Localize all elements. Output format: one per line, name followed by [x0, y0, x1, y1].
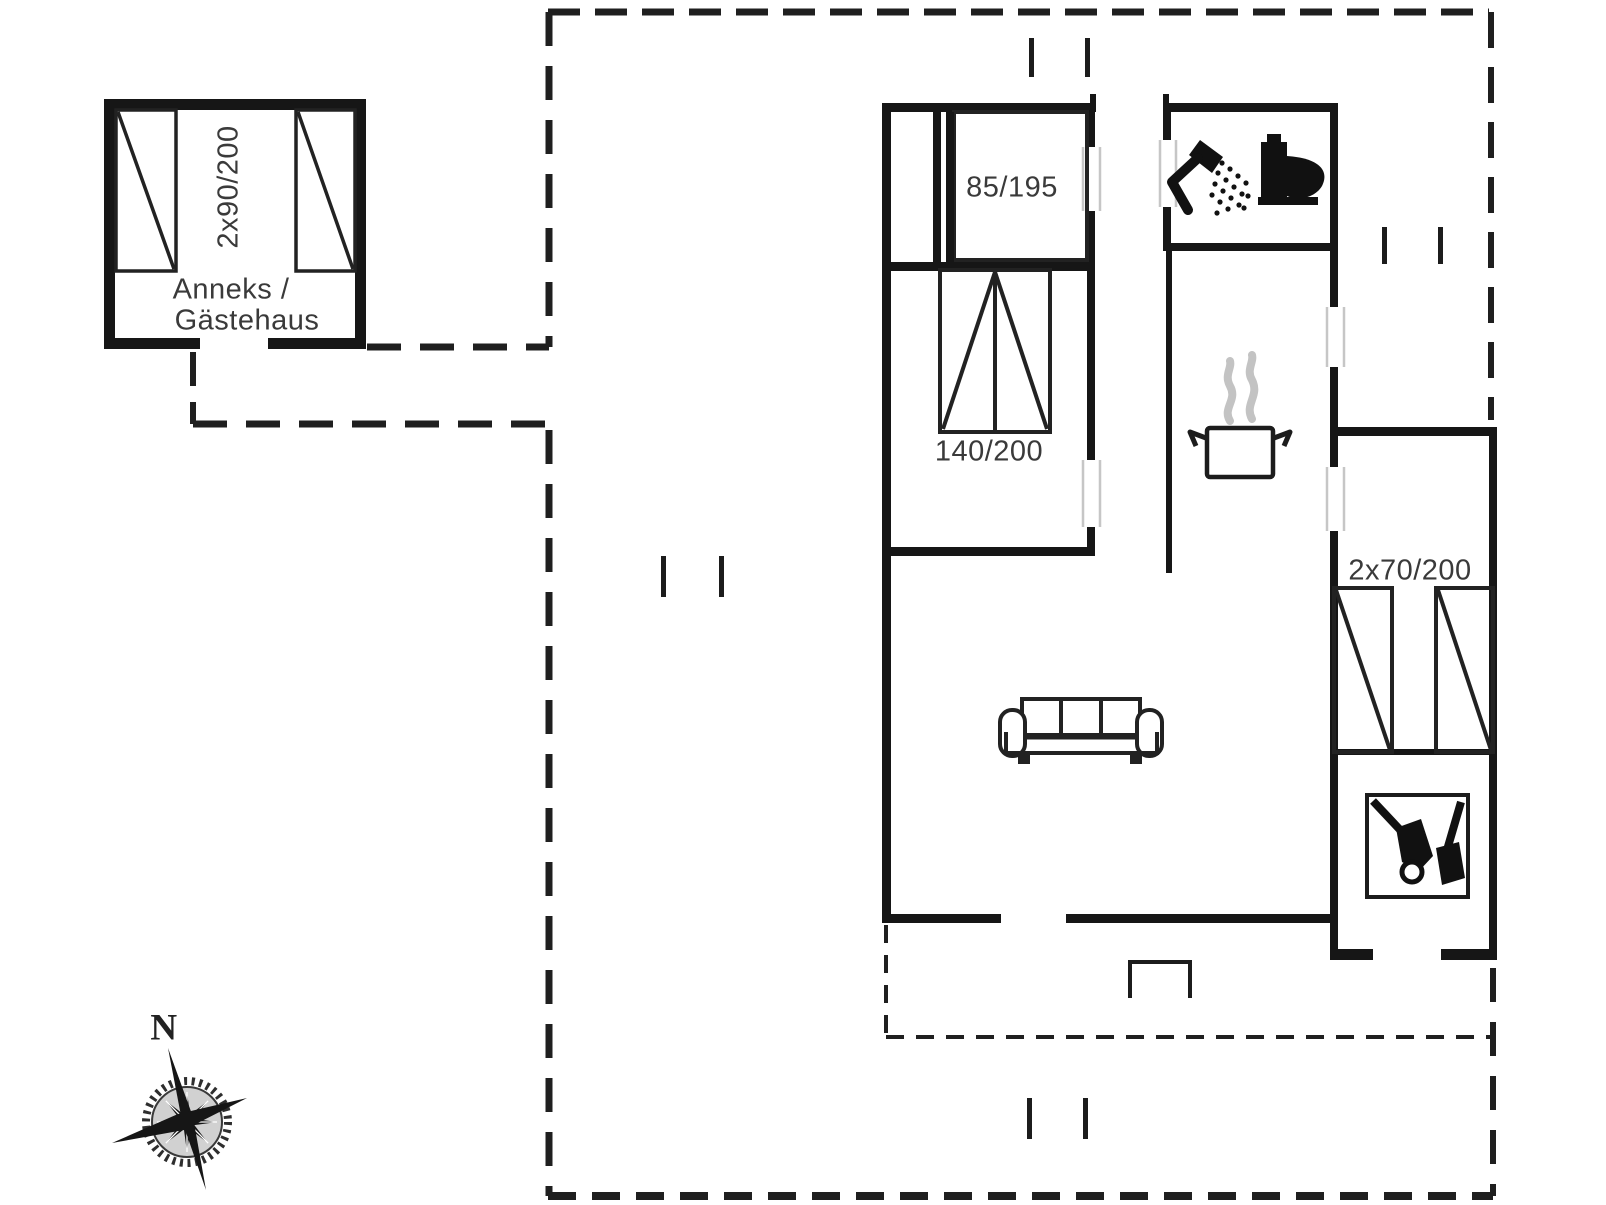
cooking-pot-icon — [1190, 355, 1290, 477]
wall-right — [1330, 367, 1338, 467]
compass-rose-icon — [112, 1048, 247, 1190]
sofa-icon — [1000, 699, 1162, 764]
wall-left — [882, 103, 891, 923]
wardrobe-line — [946, 112, 954, 262]
wall-wing-top — [1338, 427, 1497, 436]
wall-hall — [887, 547, 1095, 556]
shower-icon — [1172, 140, 1251, 216]
steam — [1228, 361, 1233, 421]
entrance-jamb — [1090, 94, 1096, 104]
wall-top-right — [1163, 103, 1338, 112]
opening-mark — [661, 556, 666, 597]
opening-mark — [1085, 38, 1090, 77]
compass-north-label: N — [150, 1007, 177, 1050]
wall-bottom-b — [1066, 914, 1338, 923]
entrance-jamb — [1163, 94, 1169, 104]
bedroom1-bed-size-label: 85/195 — [966, 172, 1058, 205]
opening-mark — [1029, 38, 1034, 77]
opening-mark — [719, 556, 724, 597]
wall-wing-bottom — [1441, 949, 1497, 960]
opening-mark — [1083, 1098, 1088, 1139]
entrance-step-icon — [1130, 962, 1190, 998]
opening-mark — [1027, 1098, 1032, 1139]
wall-bottom-a — [882, 914, 1001, 923]
garden-tools-icon — [1367, 795, 1468, 897]
opening-mark — [1382, 227, 1387, 264]
wall-kitchen — [1166, 251, 1172, 573]
bedroom3-bed-size-label: 2x70/200 — [1348, 555, 1471, 588]
wall-bathroom-left — [1163, 112, 1171, 140]
wall-right — [1330, 103, 1338, 307]
bedroom2-bed-size-label: 140/200 — [935, 436, 1043, 469]
wall-wing-bottom — [1330, 949, 1373, 960]
floor-plan-canvas: 2x90/200 Anneks / Gästehaus 85/195 140/2… — [0, 0, 1606, 1205]
toilet-icon — [1258, 134, 1324, 205]
annex-bed-size-label: 2x90/200 — [213, 125, 246, 248]
annex-name-line2: Gästehaus — [175, 305, 320, 338]
wall-bathroom-bottom — [1163, 243, 1338, 251]
wardrobe-line — [933, 112, 941, 262]
annex-name-line1: Anneks / — [173, 274, 290, 307]
steam — [1250, 355, 1255, 419]
opening-mark — [1438, 227, 1443, 264]
shower-spray — [1209, 160, 1250, 215]
